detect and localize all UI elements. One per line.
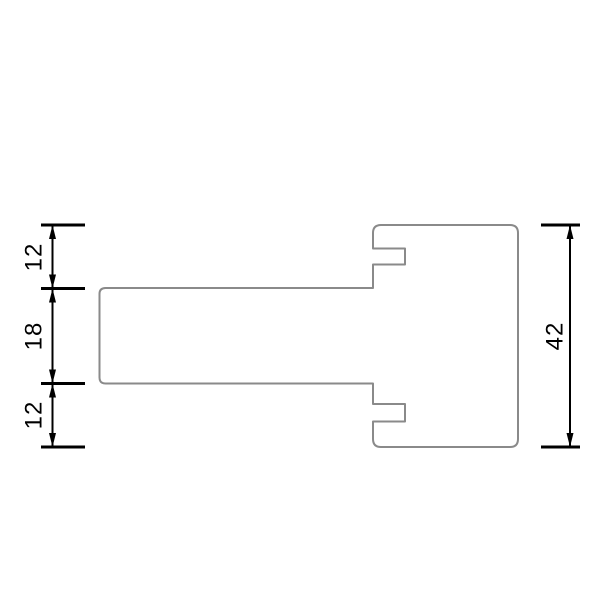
dim-arrowhead-up [49, 384, 56, 398]
dim-label-18: 18 [21, 322, 48, 351]
technical-drawing: 12 18 12 42 [0, 0, 608, 608]
dim-arrowhead-up [567, 225, 574, 239]
dim-arrowhead-down [567, 433, 574, 447]
right-dimension: 42 [541, 225, 580, 447]
dim-arrowhead-up [49, 225, 56, 239]
drawing-canvas: 12 18 12 42 [0, 0, 608, 608]
dim-label-12-lower: 12 [21, 401, 48, 430]
dim-label-42: 42 [542, 322, 569, 351]
dim-label-12-upper: 12 [21, 243, 48, 272]
profile-outline [100, 225, 519, 447]
dim-arrowhead-down [49, 275, 56, 289]
dim-arrowhead-up [49, 289, 56, 303]
dim-arrowhead-down [49, 433, 56, 447]
dim-arrowhead-down [49, 370, 56, 384]
left-dimension-chain: 12 18 12 [21, 225, 86, 447]
